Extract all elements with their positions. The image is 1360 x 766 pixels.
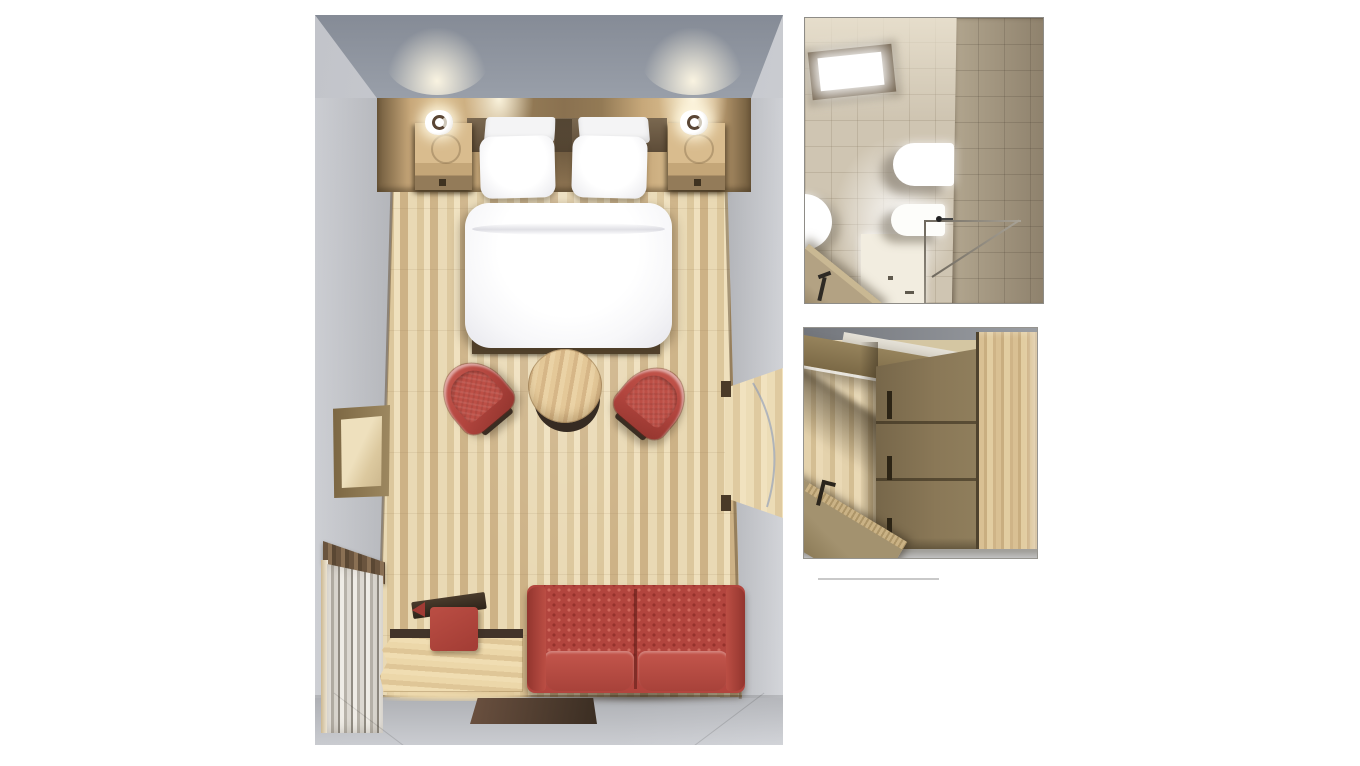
door-jamb-bottom [721, 495, 731, 511]
wardrobe-door-front [876, 348, 976, 553]
duvet-fold [472, 223, 665, 235]
wall-lamp-left-shade [432, 115, 447, 130]
pillow-gap-shadow [555, 119, 572, 205]
bathroom-render-panel[interactable] [804, 17, 1044, 304]
nightstand-ring-right [684, 134, 714, 164]
faucet-mark [905, 291, 914, 294]
floor-mat [470, 698, 597, 724]
sofa-seat-right [638, 651, 728, 691]
wardrobe-render-panel[interactable] [803, 327, 1038, 559]
lamp-glow-left [385, 25, 489, 95]
wardrobe-side-panel [976, 332, 1038, 556]
bathroom-right-wall [952, 18, 1044, 304]
skylight-glass [817, 52, 884, 92]
nightstand-ring-left [431, 134, 461, 164]
top-wall [315, 15, 783, 98]
wardrobe-handle-slot [887, 456, 892, 480]
sofa-armrest-right [726, 587, 745, 691]
nightstand-handle-right [694, 179, 701, 186]
sofa-cushion-seam [634, 589, 637, 689]
nightstand-handle-left [439, 179, 446, 186]
wardrobe-door-seam [876, 421, 976, 424]
sofa-armrest-left [527, 587, 546, 691]
pillow-right [571, 135, 648, 199]
wall-lamp-right-shade [687, 115, 702, 130]
room-render-panel[interactable] [315, 15, 783, 745]
door-jamb-top [721, 381, 731, 397]
floorplan-gallery [0, 0, 1360, 766]
caption-divider-line [818, 578, 939, 580]
wall-mirror-glass [341, 416, 382, 488]
ottoman [430, 607, 478, 651]
faucet-mark [888, 276, 893, 280]
two-seat-sofa [527, 585, 745, 693]
shower-arm [942, 218, 953, 220]
lamp-glow-right [641, 25, 745, 95]
toilet [893, 143, 954, 186]
pillow-left [479, 135, 556, 199]
sofa-seat-left [544, 651, 634, 691]
round-washbasin [804, 194, 832, 250]
window-trim [321, 560, 328, 733]
shower-glass-edge-vertical [924, 221, 926, 304]
door-swing-arc [743, 379, 783, 511]
coffee-table-top [528, 349, 602, 423]
wardrobe-handle-slot [887, 391, 892, 419]
